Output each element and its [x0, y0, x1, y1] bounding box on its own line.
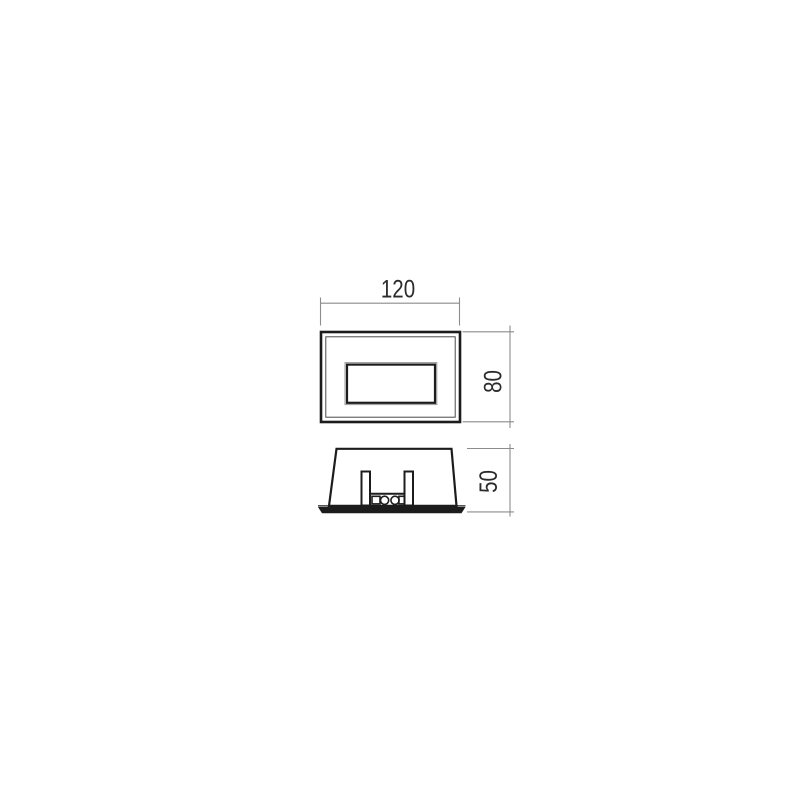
technical-drawing: 120 80 50 [0, 0, 800, 800]
mounting-flange [318, 507, 466, 513]
light-window-offset-line [345, 363, 437, 405]
depth-dimension-label: 50 [474, 470, 502, 493]
side-view [318, 449, 466, 513]
width-dimension-label: 120 [381, 275, 415, 303]
dimension-labels: 120 80 50 [381, 275, 507, 493]
right-screw-head [391, 496, 399, 504]
left-spring-clip [362, 472, 371, 506]
left-screw-head [381, 496, 389, 504]
light-window [347, 365, 435, 403]
drawing-canvas: 120 80 50 [0, 0, 800, 800]
left-screw-body [372, 496, 380, 504]
front-view [321, 332, 460, 422]
right-spring-clip [405, 472, 414, 506]
height-dimension-label: 80 [479, 370, 507, 393]
faceplate-outer-frame [321, 332, 460, 422]
